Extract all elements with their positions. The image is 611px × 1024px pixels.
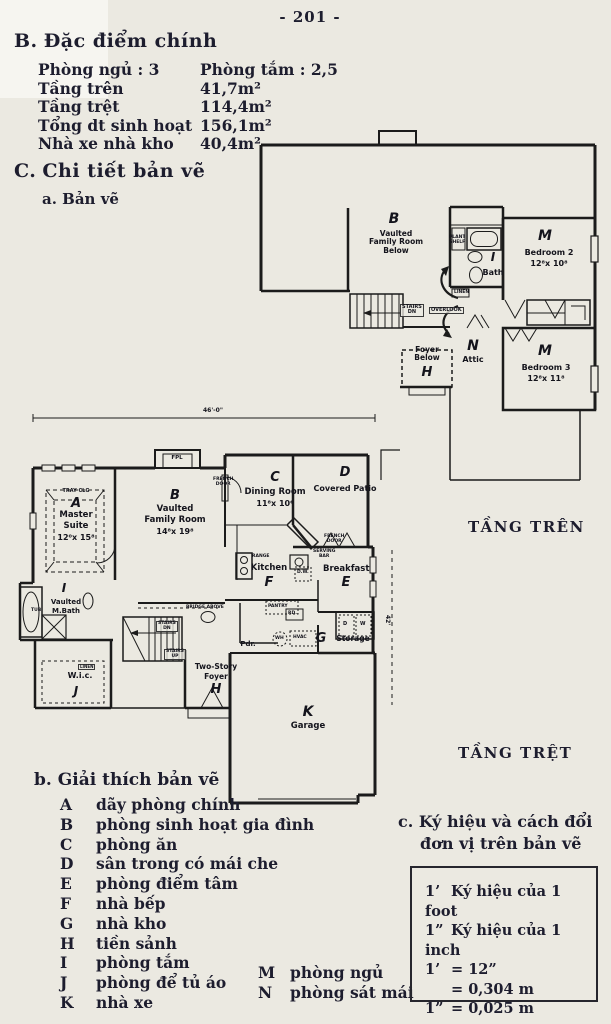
room-label-master-2: Suite xyxy=(43,522,109,532)
stairs-dn-label-ground: STAIRS DN xyxy=(156,621,178,632)
unit-symbol: 1” xyxy=(425,999,451,1019)
units-line: 1”= 0,025 m xyxy=(425,999,596,1019)
rd-label: RD. xyxy=(288,611,297,616)
legend-key: D xyxy=(60,854,73,873)
room-label-wic: W.i.c. xyxy=(60,672,100,681)
room-dims-bedroom3: 12⁸x 11⁸ xyxy=(506,375,586,384)
legend-key: B xyxy=(60,815,73,834)
scanned-document-page: - 201 - B.Đặc điểm chính Phòng ngủ : 3 P… xyxy=(0,0,611,1024)
room-label-bath-upper: Bath xyxy=(475,269,511,278)
legend-key: E xyxy=(60,874,72,893)
section-c-heading: C.Chi tiết bản vẽ xyxy=(14,160,205,182)
list-item: Cphòng ăn xyxy=(60,835,390,855)
room-label-foyer-2: Foyer xyxy=(191,673,241,681)
room-label-master-1: Master xyxy=(43,511,109,521)
section-c-letter: C. xyxy=(14,160,36,182)
stairs-dn-label: STAIRS DN xyxy=(400,304,424,317)
range-label: RANGE xyxy=(252,554,269,559)
room-label-family-below: Vaulted Family Room Below xyxy=(346,230,446,255)
list-item: Ephòng điểm tâm xyxy=(60,874,390,894)
section-b-heading: B.Đặc điểm chính xyxy=(14,30,217,52)
list-item: Htiền sảnh xyxy=(60,934,390,954)
subsection-a: a. Bản vẽ xyxy=(42,190,119,208)
list-item: Adãy phòng chính xyxy=(60,795,390,815)
page-number: - 201 - xyxy=(270,8,350,26)
feature-value: 114,4m² xyxy=(200,97,272,116)
unit-symbol: 1’ xyxy=(425,882,451,902)
legend-key: G xyxy=(60,914,73,933)
french-door-label-left: FRENCH DOOR xyxy=(213,477,233,487)
feature-value: Phòng tắm : 2,5 xyxy=(200,60,338,79)
room-dims-family: 14⁸x 19⁸ xyxy=(135,528,215,537)
room-label-storage: Storage xyxy=(333,635,373,643)
legend-text: phòng sinh hoạt gia đình xyxy=(96,815,314,834)
upper-floor-title: TẦNG TRÊN xyxy=(468,518,585,536)
room-label-bedroom3: Bedroom 3 xyxy=(506,364,586,373)
legend-heading-title: Giải thích bản vẽ xyxy=(58,770,220,790)
table-row: Phòng ngủ : 3 Phòng tắm : 2,5 xyxy=(38,60,378,79)
room-label-family-1: Vaulted xyxy=(135,505,215,515)
unit-text: = 0,304 m xyxy=(451,981,534,998)
room-label-family-2: Family Room xyxy=(135,516,215,526)
list-item: Gnhà kho xyxy=(60,914,390,934)
units-heading-line2: đơn vị trên bản vẽ xyxy=(420,834,581,853)
room-label-mbath-2: M.Bath xyxy=(44,608,88,616)
legend-text: tiền sảnh xyxy=(96,934,177,953)
ground-floor-plan: 46'-0" 42' TRAY CLG A Master Suite 12⁰x … xyxy=(18,405,414,811)
room-letter-mbath: I xyxy=(56,582,72,595)
room-label-bedroom2: Bedroom 2 xyxy=(509,249,589,258)
room-letter-dining: C xyxy=(264,471,286,486)
legend-key: J xyxy=(60,973,67,992)
room-letter-bedroom3: M xyxy=(533,344,557,360)
room-label-foyer-below: Foyer Below xyxy=(403,346,451,363)
section-c-title: Chi tiết bản vẽ xyxy=(42,160,205,182)
serving-bar-label: SERVING BAR xyxy=(313,549,335,559)
room-letter-patio: D xyxy=(334,466,356,481)
legend-text: dãy phòng chính xyxy=(96,795,240,814)
legend-key: N xyxy=(258,983,272,1002)
room-label-garage: Garage xyxy=(281,722,335,732)
room-dims-dining: 11⁸x 10⁶ xyxy=(235,500,315,509)
water-heater-label: WH xyxy=(275,636,284,641)
pantry-label: PANTRY xyxy=(268,604,288,609)
unit-symbol: 1’ xyxy=(425,960,451,980)
list-item: Fnhà bếp xyxy=(60,894,390,914)
room-letter-bedroom2: M xyxy=(533,229,557,245)
legend-text: phòng tắm xyxy=(96,953,190,972)
unit-symbol: 1” xyxy=(425,921,451,941)
dimension-top: 46'-0" xyxy=(178,408,248,415)
room-letter-family: B xyxy=(164,489,186,504)
list-item: Dsân trong có mái che xyxy=(60,854,390,874)
ground-floor-title: TẦNG TRỆT xyxy=(458,744,572,762)
room-letter-foyer: H xyxy=(206,683,226,698)
legend-text: sân trong có mái che xyxy=(96,854,278,873)
room-letter-storage: G xyxy=(312,632,330,647)
dimension-right: 42' xyxy=(383,615,390,625)
legend-key: I xyxy=(60,953,67,972)
legend-key: F xyxy=(60,894,71,913)
tub-label: TUB xyxy=(31,608,41,613)
legend-key: M xyxy=(258,963,275,982)
legend-text: nhà kho xyxy=(96,914,166,933)
hvac-label: HVAC xyxy=(293,635,307,640)
section-b-title: Đặc điểm chính xyxy=(44,30,218,52)
room-letter-foyer-below: H xyxy=(417,366,437,381)
dryer-label: D xyxy=(343,622,347,628)
units-line: 1”Ký hiệu của 1 inch xyxy=(425,921,596,960)
room-letter-family-below: B xyxy=(379,212,409,228)
room-letter-kitchen: F xyxy=(258,576,280,591)
linen-label-upper: LINEN xyxy=(454,290,469,295)
linen-label-ground: LINEN xyxy=(78,664,95,670)
feature-label: Tầng trên xyxy=(38,79,124,98)
room-letter-garage: K xyxy=(296,705,320,721)
feature-label: Nhà xe nhà kho xyxy=(38,134,174,153)
legend-text: phòng điểm tâm xyxy=(96,874,238,893)
tray-ceiling-label: TRAY CLG xyxy=(47,489,105,495)
washer-label: W xyxy=(360,622,366,628)
room-letter-wic: J xyxy=(66,685,86,698)
legend-key: K xyxy=(60,993,73,1012)
fireplace-label: FPL xyxy=(163,455,191,461)
feature-label: Tổng dt sinh hoạt xyxy=(38,116,192,135)
room-dims-bedroom2: 12⁸x 10⁸ xyxy=(509,260,589,269)
stairs-up-label-ground: STAIRS UP xyxy=(164,649,186,660)
room-letter-breakfast: E xyxy=(335,576,357,591)
legend-key: C xyxy=(60,835,72,854)
feature-value: 41,7m² xyxy=(200,79,261,98)
room-letter-attic: N xyxy=(463,339,483,355)
overlook-label: OVERLOOK xyxy=(429,307,464,314)
room-label-dining: Dining Room xyxy=(235,488,315,498)
table-row: Tầng trên 41,7m² xyxy=(38,79,378,98)
bridge-above-label: BRIDGE ABOVE xyxy=(186,605,224,610)
room-label-breakfast: Breakfast xyxy=(323,565,369,575)
legend-text: phòng sát mái xyxy=(290,983,414,1002)
room-label-attic: Attic xyxy=(455,356,491,365)
legend-heading: b. Giải thích bản vẽ xyxy=(34,770,219,790)
legend-text: phòng ăn xyxy=(96,835,177,854)
legend-key: A xyxy=(60,795,72,814)
unit-text: = 12” xyxy=(451,961,497,978)
legend-text: nhà bếp xyxy=(96,894,166,913)
legend-key: H xyxy=(60,934,75,953)
feature-label: Phòng ngủ : 3 xyxy=(38,60,159,79)
list-item: Bphòng sinh hoạt gia đình xyxy=(60,815,390,835)
room-letter-bath-upper: I xyxy=(485,251,501,264)
units-line: 1’= 12” xyxy=(425,960,596,980)
section-b-letter: B. xyxy=(14,30,38,52)
legend-text: nhà xe xyxy=(96,993,153,1012)
units-heading-letter: c. xyxy=(398,812,413,831)
room-dims-master: 12⁰x 15⁸ xyxy=(43,534,109,543)
dishwasher-label: D.W. xyxy=(297,570,309,575)
plant-shelf-label: PLANT SHELF xyxy=(449,235,465,245)
powder-room-label: Pdr. xyxy=(236,641,260,649)
legend-heading-letter: b. xyxy=(34,770,52,790)
room-label-mbath-1: Vaulted xyxy=(44,599,88,607)
units-box: 1’Ký hiệu của 1 foot 1”Ký hiệu của 1 inc… xyxy=(410,866,598,1002)
legend-text: phòng ngủ xyxy=(290,963,383,982)
units-heading-line1: c. Ký hiệu và cách đổi xyxy=(398,812,592,831)
units-line: 1’Ký hiệu của 1 foot xyxy=(425,882,596,921)
french-door-label-patio: FRENCH DOOR xyxy=(324,534,344,544)
room-label-patio: Covered Patio xyxy=(305,485,385,494)
room-label-foyer-1: Two-Story xyxy=(191,663,241,671)
units-line: = 0,304 m xyxy=(425,980,596,1000)
room-label-kitchen: Kitchen xyxy=(243,564,295,574)
unit-text: = 0,025 m xyxy=(451,1000,534,1017)
feature-label: Tầng trệt xyxy=(38,97,119,116)
table-row: Tầng trệt 114,4m² xyxy=(38,97,378,116)
feature-value: 40,4m² xyxy=(200,134,261,153)
units-heading-text1: Ký hiệu và cách đổi xyxy=(419,812,592,831)
legend-text: phòng để tủ áo xyxy=(96,973,226,992)
